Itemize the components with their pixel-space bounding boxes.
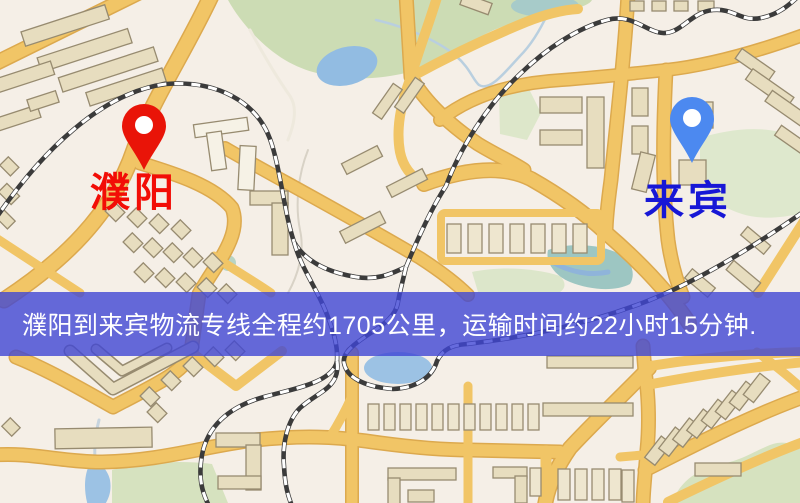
destination-pin-icon	[665, 93, 719, 165]
route-info-text: 濮阳到来宾物流专线全程约1705公里，运输时间约22小时15分钟.	[22, 306, 757, 342]
origin-pin-icon	[117, 100, 171, 172]
route-info-banner: 濮阳到来宾物流专线全程约1705公里，运输时间约22小时15分钟.	[0, 292, 800, 356]
origin-city-label: 濮阳	[90, 173, 178, 213]
destination-city-label: 来宾	[644, 181, 732, 221]
map-image: 濮阳 来宾 濮阳到来宾物流专线全程约1705公里，运输时间约22小时15分钟.	[0, 0, 800, 503]
map-background	[0, 0, 800, 503]
